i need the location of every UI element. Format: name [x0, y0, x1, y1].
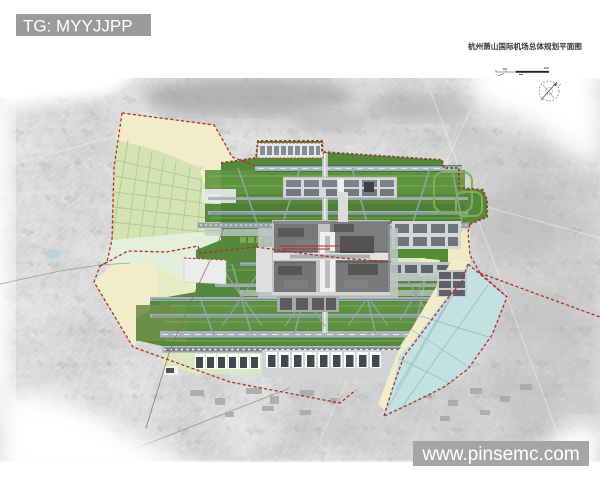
svg-text:www.pinsemc.com: www.pinsemc.com: [421, 444, 579, 465]
svg-text:TG: MYYJJPP: TG: MYYJJPP: [23, 17, 133, 36]
svg-text:杭州萧山国际机场总体规划平面图: 杭州萧山国际机场总体规划平面图: [468, 41, 582, 51]
